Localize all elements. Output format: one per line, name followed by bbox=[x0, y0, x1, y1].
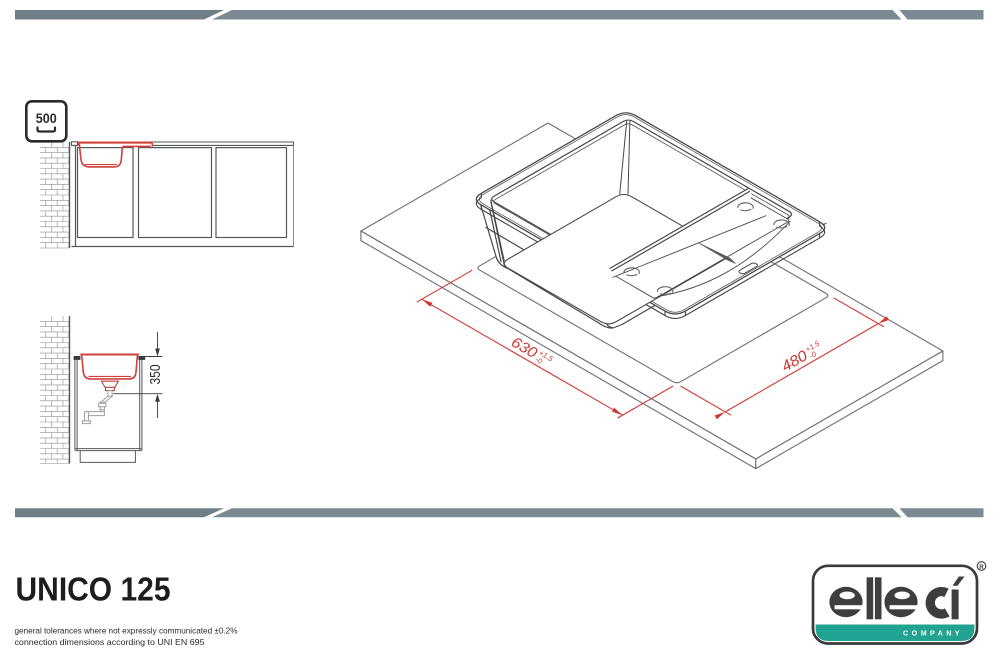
svg-text:connection dimensions accordin: connection dimensions according to UNI E… bbox=[15, 637, 205, 647]
svg-text:COMPANY: COMPANY bbox=[903, 628, 963, 637]
svg-text:general tolerances where not e: general tolerances where not expressly c… bbox=[15, 626, 238, 636]
svg-text:R: R bbox=[979, 564, 984, 571]
svg-text:UNICO 125: UNICO 125 bbox=[16, 571, 171, 608]
svg-text:500: 500 bbox=[36, 111, 57, 126]
svg-text:350: 350 bbox=[147, 365, 164, 385]
